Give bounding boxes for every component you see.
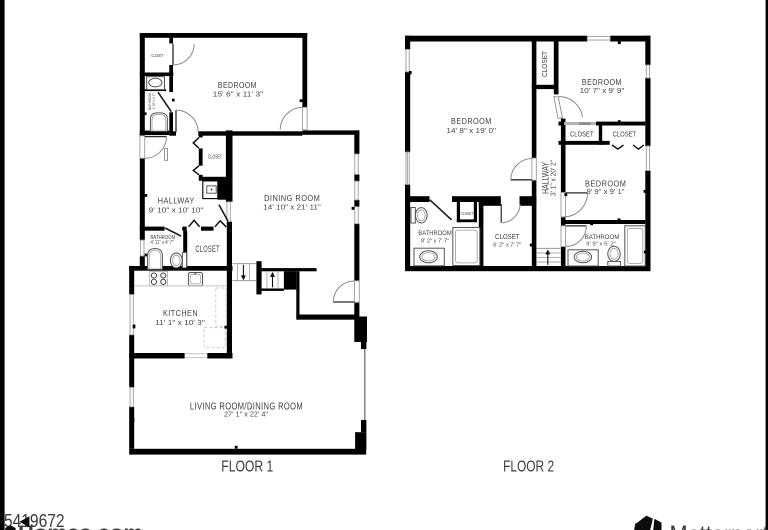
- svg-text:FLOOR 2: FLOOR 2: [503, 459, 554, 476]
- svg-text:9' 10" x 10' 10": 9' 10" x 10' 10": [149, 205, 204, 214]
- svg-text:8' 2" x 7' 7": 8' 2" x 7' 7": [421, 238, 449, 244]
- svg-text:HALLWAY: HALLWAY: [158, 197, 195, 206]
- svg-text:CLOSET: CLOSET: [495, 234, 520, 241]
- svg-text:KITCHEN: KITCHEN: [163, 309, 198, 318]
- svg-text:Homes.com: Homes.com: [18, 523, 143, 530]
- svg-text:6' 2" x 7' 7": 6' 2" x 7' 7": [493, 242, 521, 248]
- svg-text:4' 10" x 4' 7": 4' 10" x 4' 7": [152, 93, 156, 110]
- svg-text:CLOSET: CLOSET: [151, 53, 163, 58]
- svg-text:4' 11" x 4' 7": 4' 11" x 4' 7": [150, 240, 173, 246]
- svg-text:BATHROOM: BATHROOM: [418, 230, 452, 237]
- svg-text:CLOSET: CLOSET: [613, 132, 637, 139]
- svg-text:BATHROOM: BATHROOM: [585, 234, 620, 241]
- svg-text:15' 6" x 11' 3": 15' 6" x 11' 3": [213, 90, 264, 99]
- svg-text:CLOSET: CLOSET: [195, 243, 220, 254]
- svg-text:9' 9" x 5' 2": 9' 9" x 5' 2": [586, 242, 616, 248]
- svg-text:11' 1" x 10' 3": 11' 1" x 10' 3": [155, 318, 205, 327]
- svg-text:DINING ROOM: DINING ROOM: [264, 194, 320, 203]
- svg-text:CLOSET: CLOSET: [542, 50, 549, 77]
- svg-text:10' 7" x 9' 9": 10' 7" x 9' 9": [580, 86, 625, 95]
- svg-text:14' 8" x 19' 0": 14' 8" x 19' 0": [446, 126, 496, 135]
- svg-text:HALLWAY: HALLWAY: [541, 162, 551, 194]
- svg-text:9' 9" x 9' 1": 9' 9" x 9' 1": [587, 187, 625, 196]
- svg-text:CLOSET: CLOSET: [570, 132, 594, 139]
- svg-text:14' 10" x 21' 11": 14' 10" x 21' 11": [263, 203, 321, 212]
- svg-text:27' 1" x 22' 4": 27' 1" x 22' 4": [224, 410, 268, 419]
- svg-text:Matterport: Matterport: [670, 521, 768, 530]
- svg-text:CLOSET: CLOSET: [461, 211, 474, 216]
- svg-text:FLOOR 1: FLOOR 1: [221, 458, 273, 475]
- svg-text:BEDROOM: BEDROOM: [451, 117, 492, 126]
- svg-text:3' 1" x 20' 2": 3' 1" x 20' 2": [551, 160, 558, 196]
- svg-text:CLOSET: CLOSET: [208, 154, 222, 160]
